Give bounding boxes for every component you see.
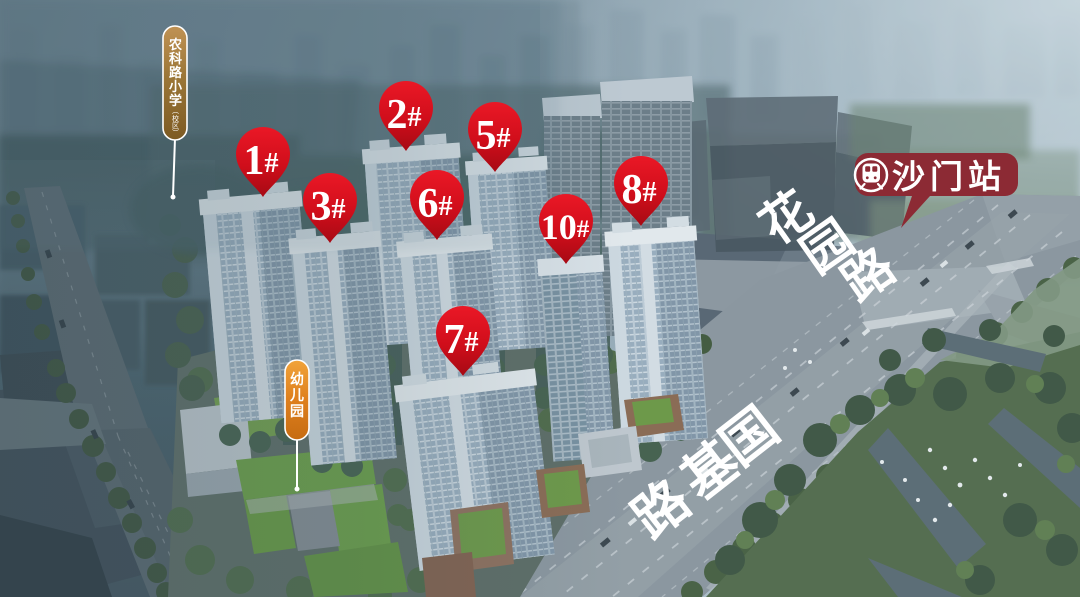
svg-text:路: 路: [169, 65, 183, 80]
svg-text:︵: ︵: [172, 108, 179, 115]
svg-text:区: 区: [172, 122, 179, 130]
svg-text:幼: 幼: [290, 371, 304, 387]
svg-text:学: 学: [169, 93, 182, 108]
svg-text:农: 农: [168, 37, 182, 52]
svg-text:小: 小: [169, 79, 182, 94]
svg-text:园: 园: [290, 403, 304, 419]
svg-text:儿: 儿: [289, 387, 304, 403]
svg-text:科: 科: [169, 51, 182, 66]
svg-text:︶: ︶: [172, 128, 179, 137]
svg-text:沙门站: 沙门站: [892, 158, 1006, 195]
svg-text:校: 校: [172, 114, 179, 123]
